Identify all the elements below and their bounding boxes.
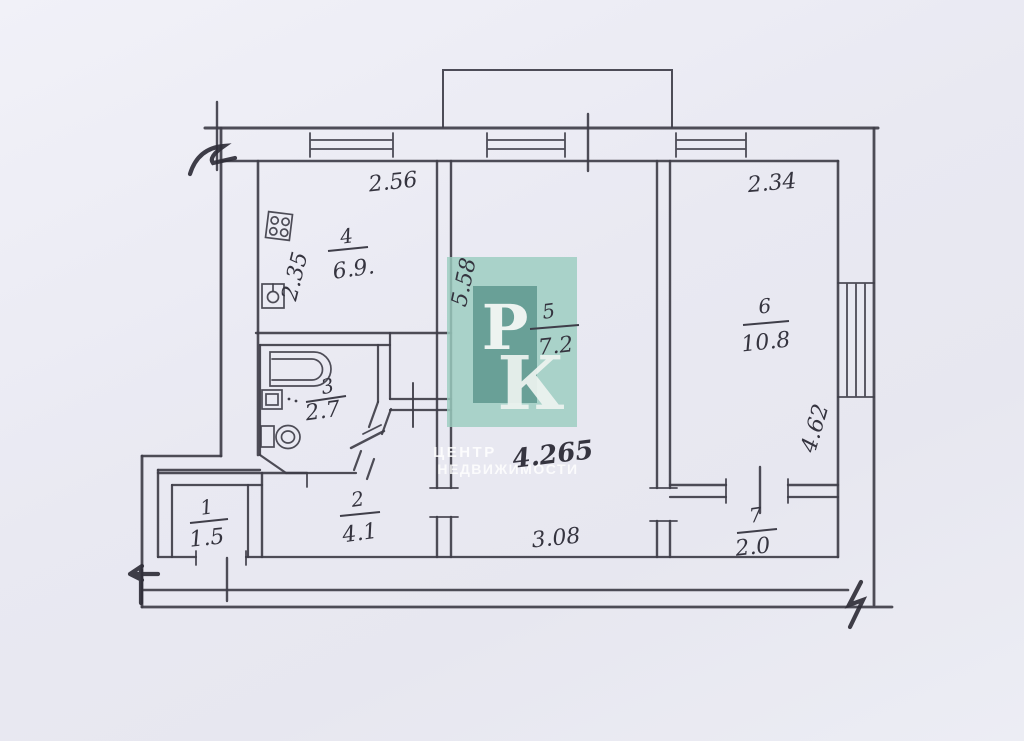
window-right-wall xyxy=(838,283,874,397)
dim-room6-depth: 4.62 xyxy=(796,401,834,456)
windows xyxy=(310,114,874,397)
dim-room6-width: 2.34 xyxy=(746,169,798,198)
room-bathroom-number: 3 xyxy=(319,373,336,399)
dim-kitchen-depth: 2.35 xyxy=(277,250,313,305)
dim-room5-width-bottom: 3.08 xyxy=(530,524,581,554)
room-entry-number: 1 xyxy=(199,494,215,520)
room-kitchen-number: 4 xyxy=(337,223,354,249)
dim-room5-width: 4.265 xyxy=(511,435,595,475)
stove-icon xyxy=(266,212,293,241)
toilet-icon xyxy=(261,426,300,449)
room-kitchen-area: 6.9. xyxy=(331,254,376,285)
balcony xyxy=(443,70,672,127)
section-mark-top-left xyxy=(190,146,235,174)
window-room5 xyxy=(487,133,565,157)
floor-plan-svg: 2.56 2.34 2.35 4.62 3.08 4 6.9. 6 10.8 3… xyxy=(0,0,1024,741)
window-room6 xyxy=(676,133,746,157)
washbasin-icon xyxy=(262,390,297,409)
entry-room-walls xyxy=(158,473,307,601)
room-bathroom-area: 2.7 xyxy=(303,397,342,427)
room-corridor-area: 2.0 xyxy=(733,533,771,562)
room-hallway-number: 2 xyxy=(349,486,366,512)
room-hallway-area: 4.1 xyxy=(340,519,379,549)
room-corridor-number: 7 xyxy=(748,502,764,528)
section-mark-bottom-right xyxy=(849,582,863,627)
room-6-number: 6 xyxy=(757,293,772,318)
window-kitchen xyxy=(310,133,393,157)
room-5-area: 7.2 xyxy=(537,332,574,361)
room-6-area: 10.8 xyxy=(740,328,791,358)
watermark-caption-line1: ЦЕНТР xyxy=(433,444,496,461)
room-entry-area: 1.5 xyxy=(188,524,225,553)
section-mark-bottom-left xyxy=(130,566,158,603)
scanned-floor-plan-page: 2.56 2.34 2.35 4.62 3.08 4 6.9. 6 10.8 3… xyxy=(0,0,1024,741)
dim-kitchen-width: 2.56 xyxy=(366,168,418,198)
